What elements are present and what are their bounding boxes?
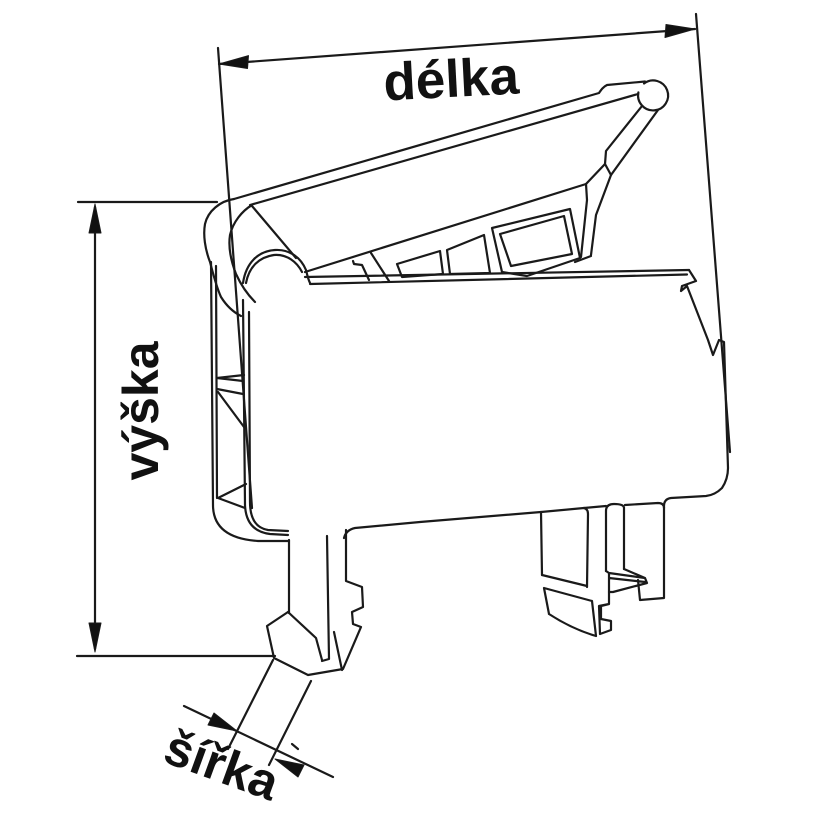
svg-text:výška: výška	[113, 340, 169, 480]
svg-text:šířka: šířka	[157, 719, 287, 812]
svg-text:délka: délka	[382, 46, 521, 112]
